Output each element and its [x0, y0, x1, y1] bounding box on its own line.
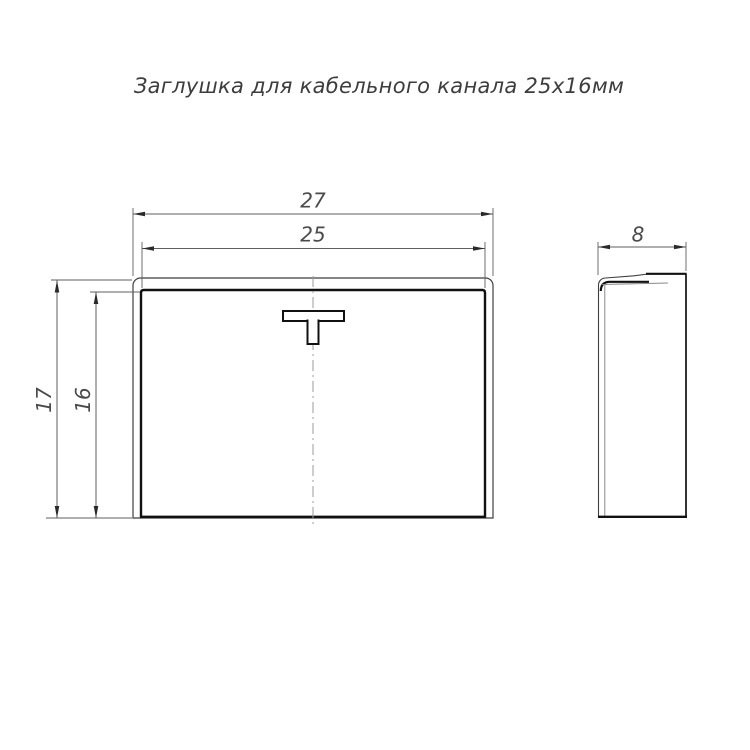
dim-label-outer-width: 27	[300, 189, 326, 213]
side-outer-thin-edge	[599, 274, 649, 517]
arrow-16-top	[94, 292, 99, 304]
arrow-16-bottom	[94, 506, 99, 518]
arrow-25-left	[142, 246, 154, 251]
side-step-line	[602, 283, 668, 285]
drawing-title: Заглушка для кабельного канала 25x16мм	[134, 74, 624, 98]
dim-label-inner-height: 16	[71, 387, 95, 412]
arrow-8-left	[598, 245, 610, 250]
arrow-27-right	[481, 212, 493, 217]
arrow-8-right	[674, 245, 686, 250]
technical-drawing: Заглушка для кабельного канала 25x16мм	[0, 0, 750, 750]
dim-label-outer-height: 17	[32, 387, 56, 413]
side-view	[598, 274, 687, 518]
latch-stem	[308, 320, 319, 345]
arrow-25-right	[473, 246, 485, 251]
dim-label-inner-width: 25	[300, 223, 325, 247]
front-view	[133, 276, 493, 527]
arrow-17-bottom	[55, 506, 60, 518]
arrow-27-left	[133, 212, 145, 217]
arrow-17-top	[55, 281, 60, 293]
drawing-canvas: Заглушка для кабельного канала 25x16мм	[0, 0, 750, 750]
dim-label-depth: 8	[632, 223, 645, 247]
